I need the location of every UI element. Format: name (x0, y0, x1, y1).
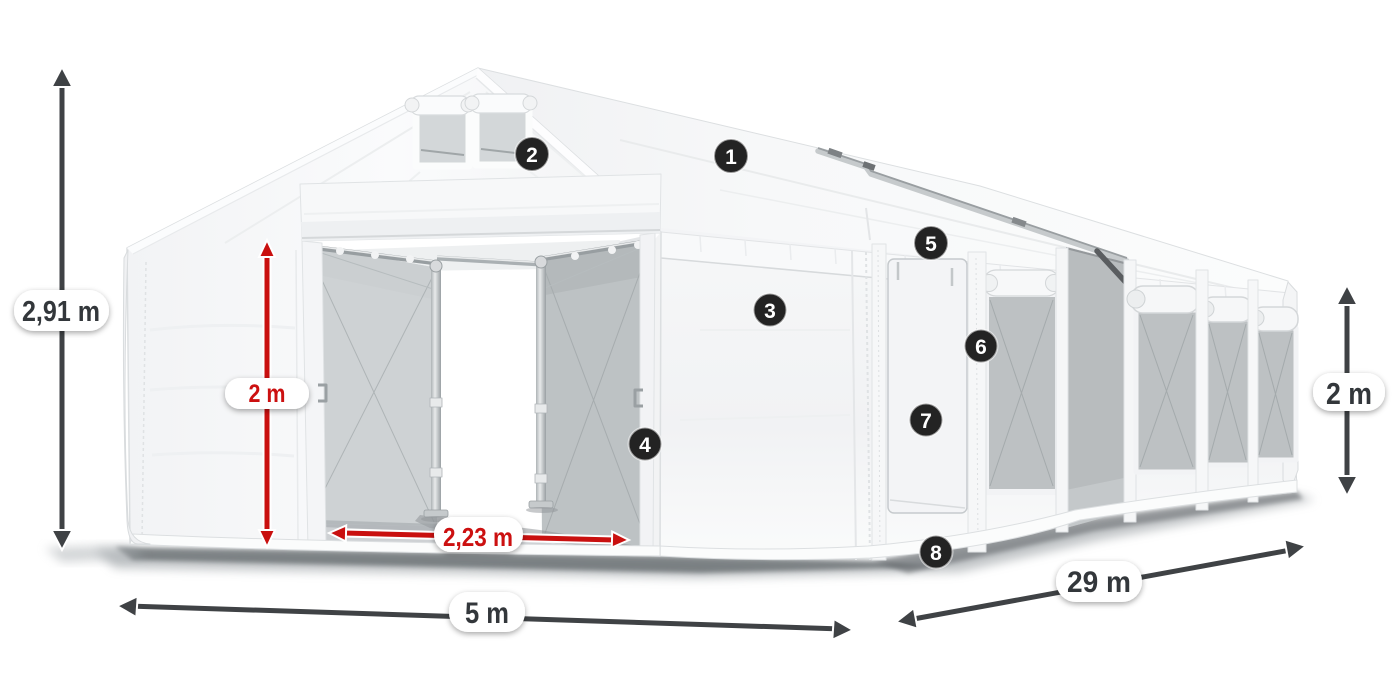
svg-text:2,23 m: 2,23 m (443, 522, 513, 552)
svg-text:29 m: 29 m (1067, 566, 1131, 599)
svg-text:2: 2 (526, 144, 538, 167)
svg-text:7: 7 (920, 410, 932, 433)
svg-text:5 m: 5 m (465, 597, 509, 630)
svg-text:2 m: 2 m (249, 380, 286, 408)
svg-text:6: 6 (975, 336, 987, 359)
svg-text:5: 5 (925, 233, 937, 256)
svg-text:2 m: 2 m (1326, 376, 1372, 411)
svg-text:2,91 m: 2,91 m (22, 296, 100, 328)
svg-text:8: 8 (930, 542, 942, 565)
svg-text:3: 3 (764, 300, 776, 323)
svg-text:1: 1 (725, 146, 737, 169)
svg-text:4: 4 (639, 434, 651, 457)
